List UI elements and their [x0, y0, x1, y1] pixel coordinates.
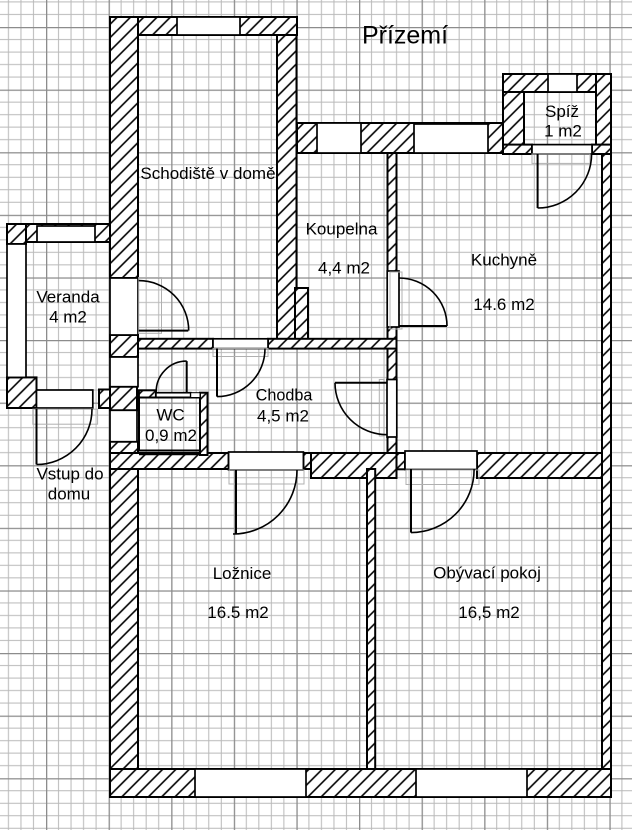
svg-text:Veranda: Veranda: [36, 288, 100, 307]
svg-text:domu: domu: [48, 485, 91, 504]
svg-text:0,9 m2: 0,9 m2: [145, 426, 197, 445]
svg-text:Chodba: Chodba: [256, 387, 313, 405]
svg-text:Ložnice: Ložnice: [213, 564, 272, 583]
svg-text:4 m2: 4 m2: [49, 308, 87, 327]
svg-text:Schodiště v domě: Schodiště v domě: [140, 164, 275, 183]
svg-text:Obývací pokoj: Obývací pokoj: [433, 564, 541, 583]
svg-text:WC: WC: [156, 406, 184, 425]
svg-text:4,4 m2: 4,4 m2: [318, 259, 370, 278]
svg-text:14.6 m2: 14.6 m2: [473, 295, 534, 314]
svg-text:1 m2: 1 m2: [544, 122, 582, 141]
svg-text:Přízemí: Přízemí: [362, 22, 448, 50]
svg-text:Koupelna: Koupelna: [306, 220, 378, 239]
svg-text:Spíž: Spíž: [545, 102, 579, 121]
svg-text:16,5 m2: 16,5 m2: [458, 603, 519, 622]
svg-text:4,5 m2: 4,5 m2: [257, 407, 309, 426]
svg-text:Vstup do: Vstup do: [36, 465, 103, 484]
svg-text:Kuchyně: Kuchyně: [471, 251, 537, 270]
svg-text:16.5 m2: 16.5 m2: [207, 603, 268, 622]
